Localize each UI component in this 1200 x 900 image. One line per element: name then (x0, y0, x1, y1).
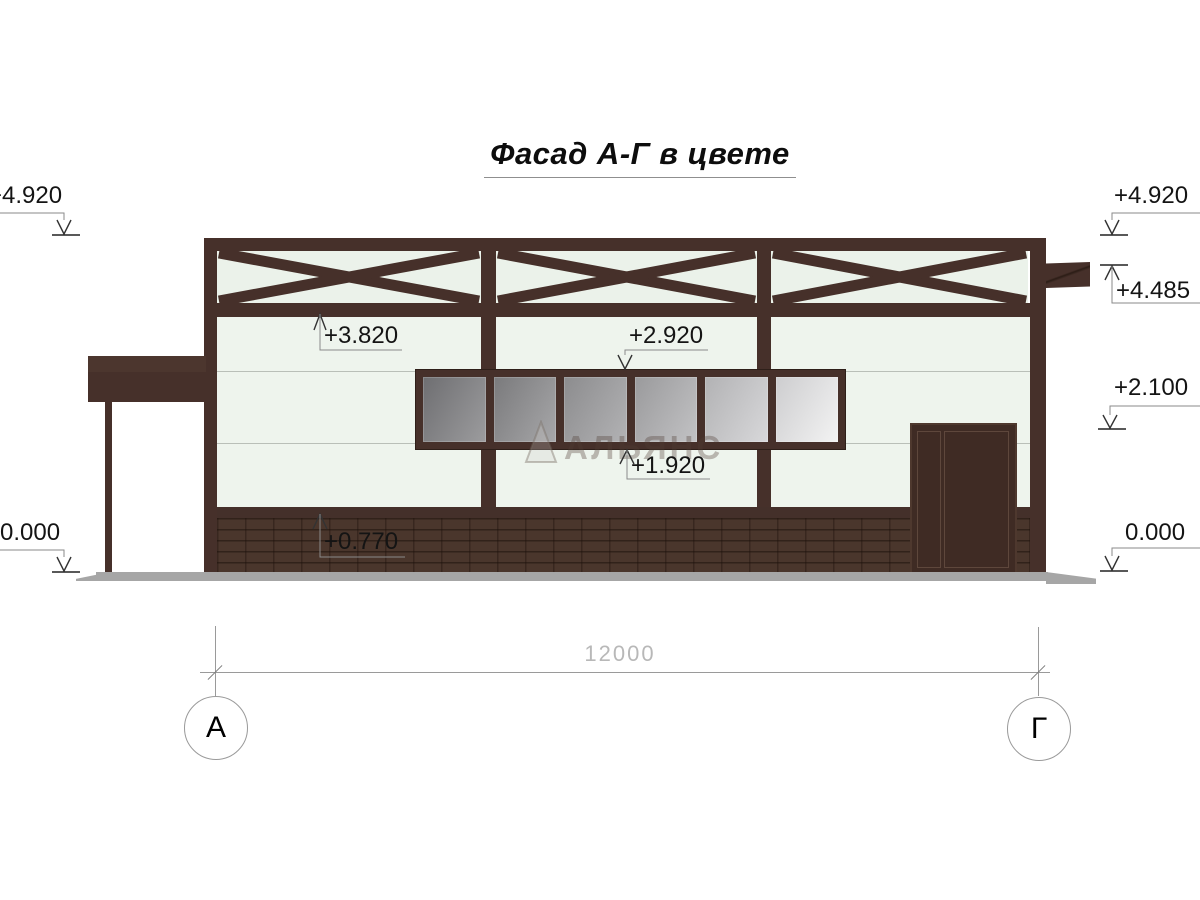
elevation-marker-left-ground: 0.000 (0, 521, 100, 577)
elevation-arrow-down-icon (1098, 376, 1200, 432)
extension-line-g (1038, 627, 1039, 696)
elevation-arrow-down-icon (1100, 521, 1200, 573)
drawing-canvas: Фасад А-Г в цвете АЛЬЯ (0, 0, 1200, 900)
elevation-marker-right-door: +2.100 (1098, 376, 1200, 432)
window-pane (776, 377, 839, 442)
elevation-arrow-down-icon (0, 521, 100, 577)
watermark-triangle-icon (524, 420, 558, 464)
canopy-post (105, 402, 112, 574)
annotation-window-bottom-level: +1.920 (613, 449, 723, 481)
elevation-marker-right-truss: +4.485 (1100, 262, 1200, 308)
axis-letter-a: А (206, 711, 226, 745)
annotation-girt-level: +3.820 (306, 313, 416, 353)
ground-line (96, 572, 1048, 581)
page-title-wrap: Фасад А-Г в цвете (400, 136, 880, 178)
axis-bubble-a: А (184, 696, 248, 760)
page-title: Фасад А-Г в цвете (484, 136, 796, 178)
dimension-line (200, 672, 1050, 673)
door-leaf-wide (944, 431, 1009, 568)
axis-letter-g: Г (1031, 712, 1047, 746)
annotation-brick-top-level: +0.770 (306, 513, 416, 559)
annotation-value: +0.770 (324, 530, 398, 554)
elevation-marker-right-roof: +4.920 (1100, 184, 1200, 240)
annotation-window-top-level: +2.920 (613, 324, 723, 370)
elevation-arrow-down-icon (0, 184, 100, 240)
ground-ramp (1046, 572, 1096, 584)
annotation-value: +3.820 (324, 324, 398, 348)
truss-x-bracing (204, 251, 1046, 303)
extension-line-a (215, 626, 216, 696)
axis-bubble-g: Г (1007, 697, 1071, 761)
canopy-fascia (88, 356, 206, 402)
elevation-marker-right-ground: 0.000 (1100, 521, 1200, 573)
truss-top-chord (204, 238, 1046, 251)
elevation-arrow-down-icon (1100, 184, 1200, 240)
roof-cantilever-beam (1046, 262, 1090, 288)
elevation-marker-left-roof: +4.920 (0, 184, 100, 240)
window-pane (423, 377, 486, 442)
entrance-door (910, 423, 1017, 574)
annotation-arrow-down-icon (613, 324, 723, 370)
column-right (1030, 238, 1046, 578)
annotation-value: +1.920 (631, 454, 705, 478)
column-left (204, 238, 217, 578)
dimension-label: 12000 (540, 641, 700, 667)
door-leaf-narrow (917, 431, 941, 568)
elevation-value: +4.485 (1116, 279, 1190, 303)
